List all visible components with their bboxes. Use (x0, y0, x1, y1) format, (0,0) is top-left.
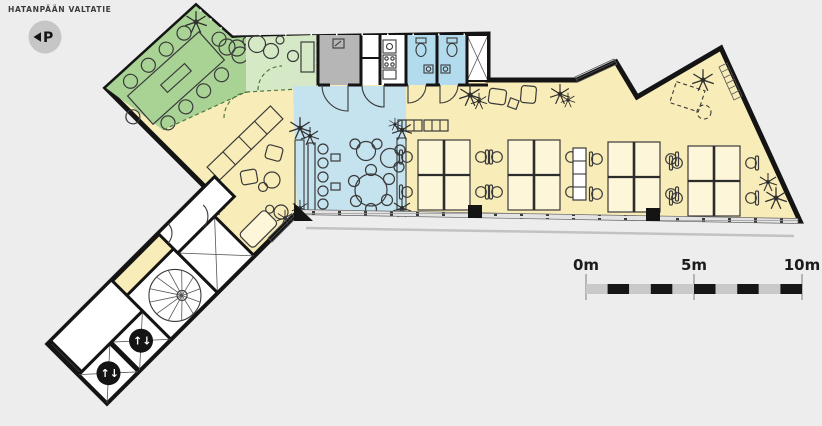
scale-segment (629, 284, 651, 294)
street-label: HATANPÄÄN VALTATIE (8, 5, 112, 14)
closet (467, 35, 488, 81)
elevator-arrows-icon: ↑↓ (133, 335, 151, 348)
elevator-arrows-icon: ↑↓ (100, 367, 118, 380)
scale-segment (780, 284, 802, 294)
scale-label: 0m (573, 256, 599, 274)
scale-segment (759, 284, 781, 294)
scale-segment (586, 284, 608, 294)
scale-label: 10m (784, 256, 821, 274)
scale-label: 5m (681, 256, 707, 274)
scale-segment (716, 284, 738, 294)
floorplan-drawing: HATANPÄÄN VALTATIE P (0, 0, 822, 426)
column (646, 208, 660, 221)
parking-letter: P (43, 30, 53, 46)
scale-segment (672, 284, 694, 294)
column (468, 205, 482, 218)
scale-segment (737, 284, 759, 294)
technical-room (318, 35, 361, 85)
cafe-zone (293, 86, 406, 215)
scale-segment (651, 284, 673, 294)
scale-segment (608, 284, 630, 294)
parking-badge: P (29, 21, 62, 54)
floorplan-page: HATANPÄÄN VALTATIE P (0, 0, 822, 426)
scale-segment (694, 284, 716, 294)
storage-room (361, 35, 380, 85)
cafe-floor (293, 86, 406, 213)
kitchen-strip (361, 35, 406, 85)
